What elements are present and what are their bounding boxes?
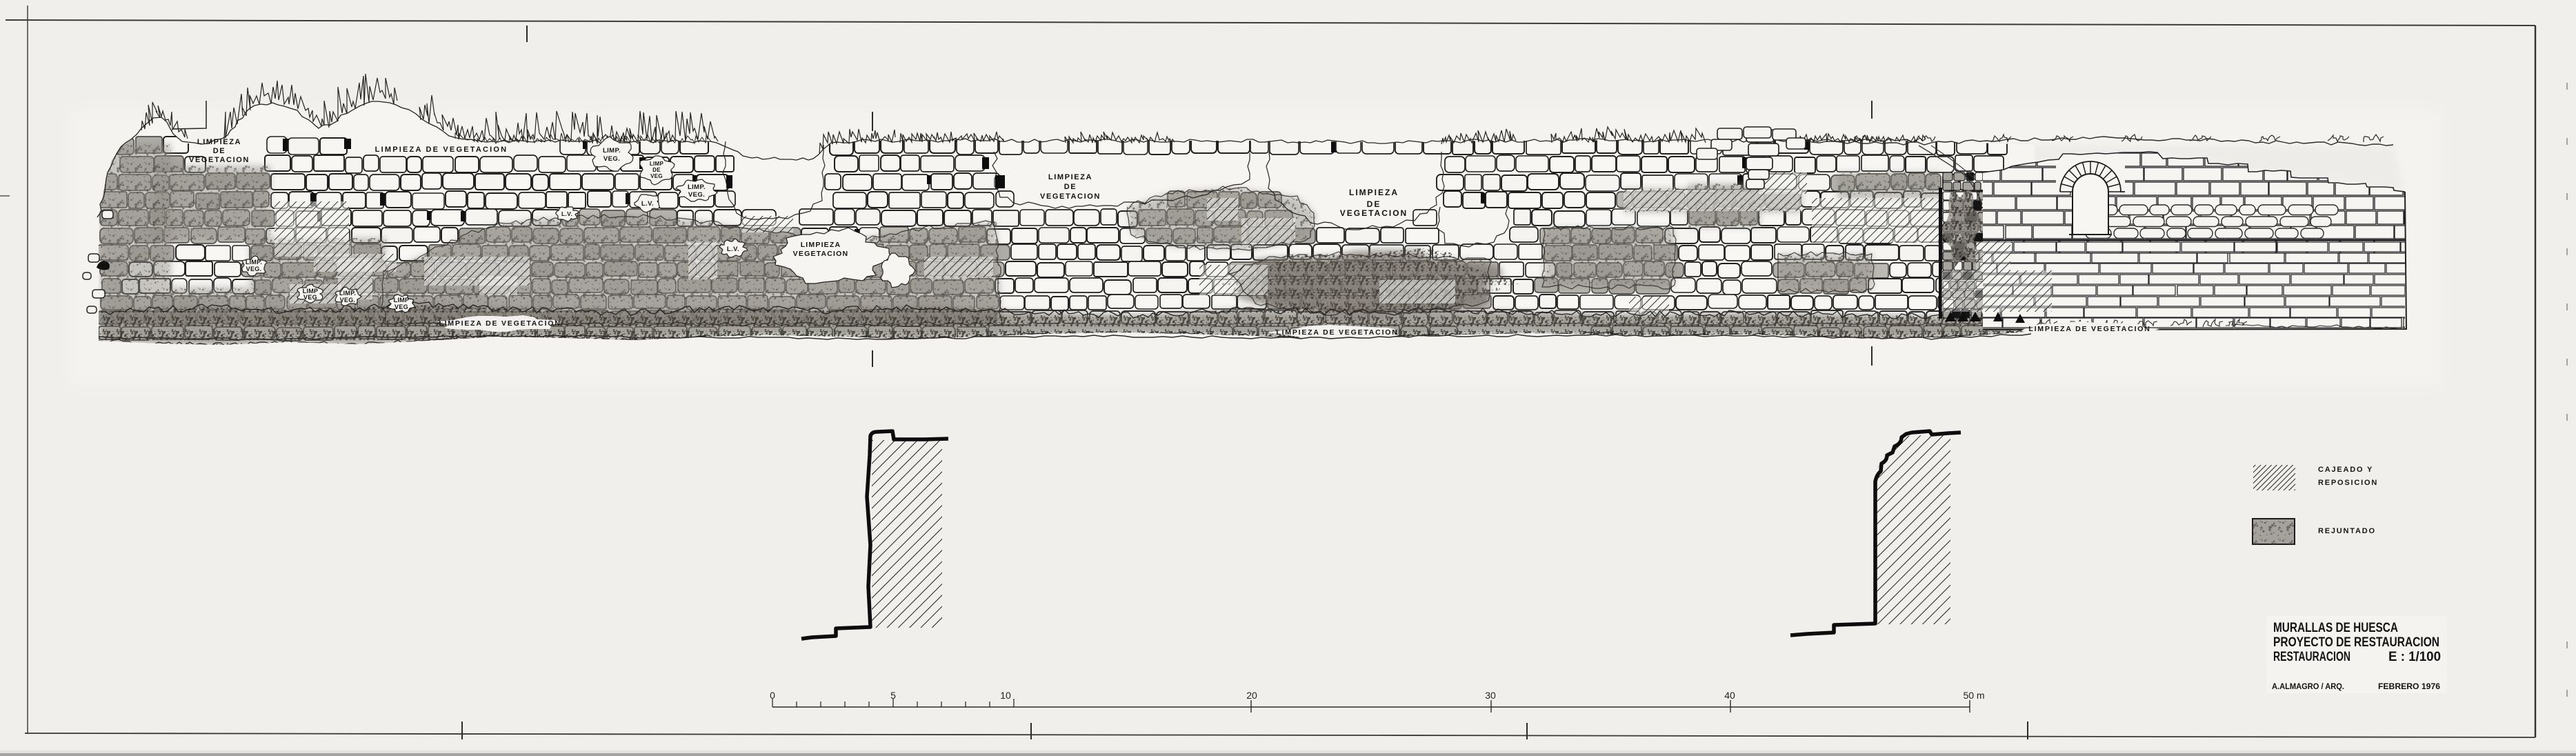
svg-text:LIMPIEZA: LIMPIEZA bbox=[1349, 188, 1399, 197]
svg-text:LIMPIEZA DE VEGETACION: LIMPIEZA DE VEGETACION bbox=[1276, 328, 1398, 337]
svg-text:PROYECTO DE RESTAURACION: PROYECTO DE RESTAURACION bbox=[2273, 635, 2439, 650]
svg-text:LIMP: LIMP bbox=[650, 161, 664, 167]
svg-text:DE: DE bbox=[213, 147, 226, 155]
svg-text:LIMP.: LIMP. bbox=[339, 290, 356, 297]
svg-text:MURALLAS DE HUESCA: MURALLAS DE HUESCA bbox=[2273, 621, 2398, 635]
svg-text:VEG: VEG bbox=[303, 294, 317, 301]
svg-text:10: 10 bbox=[1000, 690, 1011, 701]
svg-text:LIMP.: LIMP. bbox=[603, 147, 621, 155]
svg-text:LIMPIEZA DE VEGETACION: LIMPIEZA DE VEGETACION bbox=[375, 146, 508, 154]
svg-text:FEBRERO 1976: FEBRERO 1976 bbox=[2378, 682, 2440, 691]
svg-text:LIMPIEZA: LIMPIEZA bbox=[197, 138, 241, 146]
svg-text:VEG.: VEG. bbox=[340, 297, 356, 304]
svg-text:VEG.: VEG. bbox=[603, 155, 620, 163]
svg-text:VEGETACION: VEGETACION bbox=[189, 156, 250, 164]
svg-text:30: 30 bbox=[1485, 690, 1496, 701]
svg-text:L.V.: L.V. bbox=[561, 210, 572, 217]
svg-text:A.ALMAGRO / ARQ.: A.ALMAGRO / ARQ. bbox=[2272, 682, 2344, 691]
svg-text:CAJEADO Y: CAJEADO Y bbox=[2318, 466, 2373, 474]
svg-text:LIMPIEZA: LIMPIEZA bbox=[801, 241, 841, 249]
svg-text:DE: DE bbox=[1064, 183, 1077, 191]
svg-text:LIMP.: LIMP. bbox=[246, 259, 262, 266]
svg-text:VEGETACION: VEGETACION bbox=[793, 250, 849, 258]
svg-text:LIMPIEZA DE VEGETACION: LIMPIEZA DE VEGETACION bbox=[2028, 325, 2150, 333]
svg-text:DE: DE bbox=[1367, 199, 1381, 209]
svg-text:40: 40 bbox=[1724, 690, 1735, 701]
svg-text:L.V.: L.V. bbox=[641, 200, 654, 208]
svg-text:VEG.: VEG. bbox=[688, 191, 705, 199]
svg-text:VEG.: VEG. bbox=[246, 266, 262, 272]
svg-text:0: 0 bbox=[770, 690, 775, 701]
svg-text:REPOSICION: REPOSICION bbox=[2318, 479, 2378, 487]
svg-text:DE: DE bbox=[652, 167, 661, 173]
svg-text:VEG: VEG bbox=[395, 304, 408, 310]
svg-text:VEG: VEG bbox=[650, 173, 663, 179]
svg-text:VEGETACION: VEGETACION bbox=[1340, 208, 1408, 218]
svg-text:LIMP: LIMP bbox=[394, 297, 410, 304]
svg-text:LIMP.: LIMP. bbox=[688, 183, 706, 191]
svg-text:50 m: 50 m bbox=[1963, 690, 1984, 701]
svg-text:20: 20 bbox=[1246, 690, 1257, 701]
svg-text:LIMPIEZA: LIMPIEZA bbox=[1048, 173, 1092, 181]
svg-text:VEGETACION: VEGETACION bbox=[1040, 192, 1101, 201]
svg-text:LIMPIEZA DE VEGETACION: LIMPIEZA DE VEGETACION bbox=[439, 319, 561, 328]
svg-text:L.V.: L.V. bbox=[727, 246, 739, 253]
svg-text:E : 1/100: E : 1/100 bbox=[2388, 650, 2441, 664]
svg-text:RESTAURACION: RESTAURACION bbox=[2273, 650, 2350, 664]
svg-text:5: 5 bbox=[890, 690, 896, 701]
svg-text:REJUNTADO: REJUNTADO bbox=[2318, 527, 2376, 535]
